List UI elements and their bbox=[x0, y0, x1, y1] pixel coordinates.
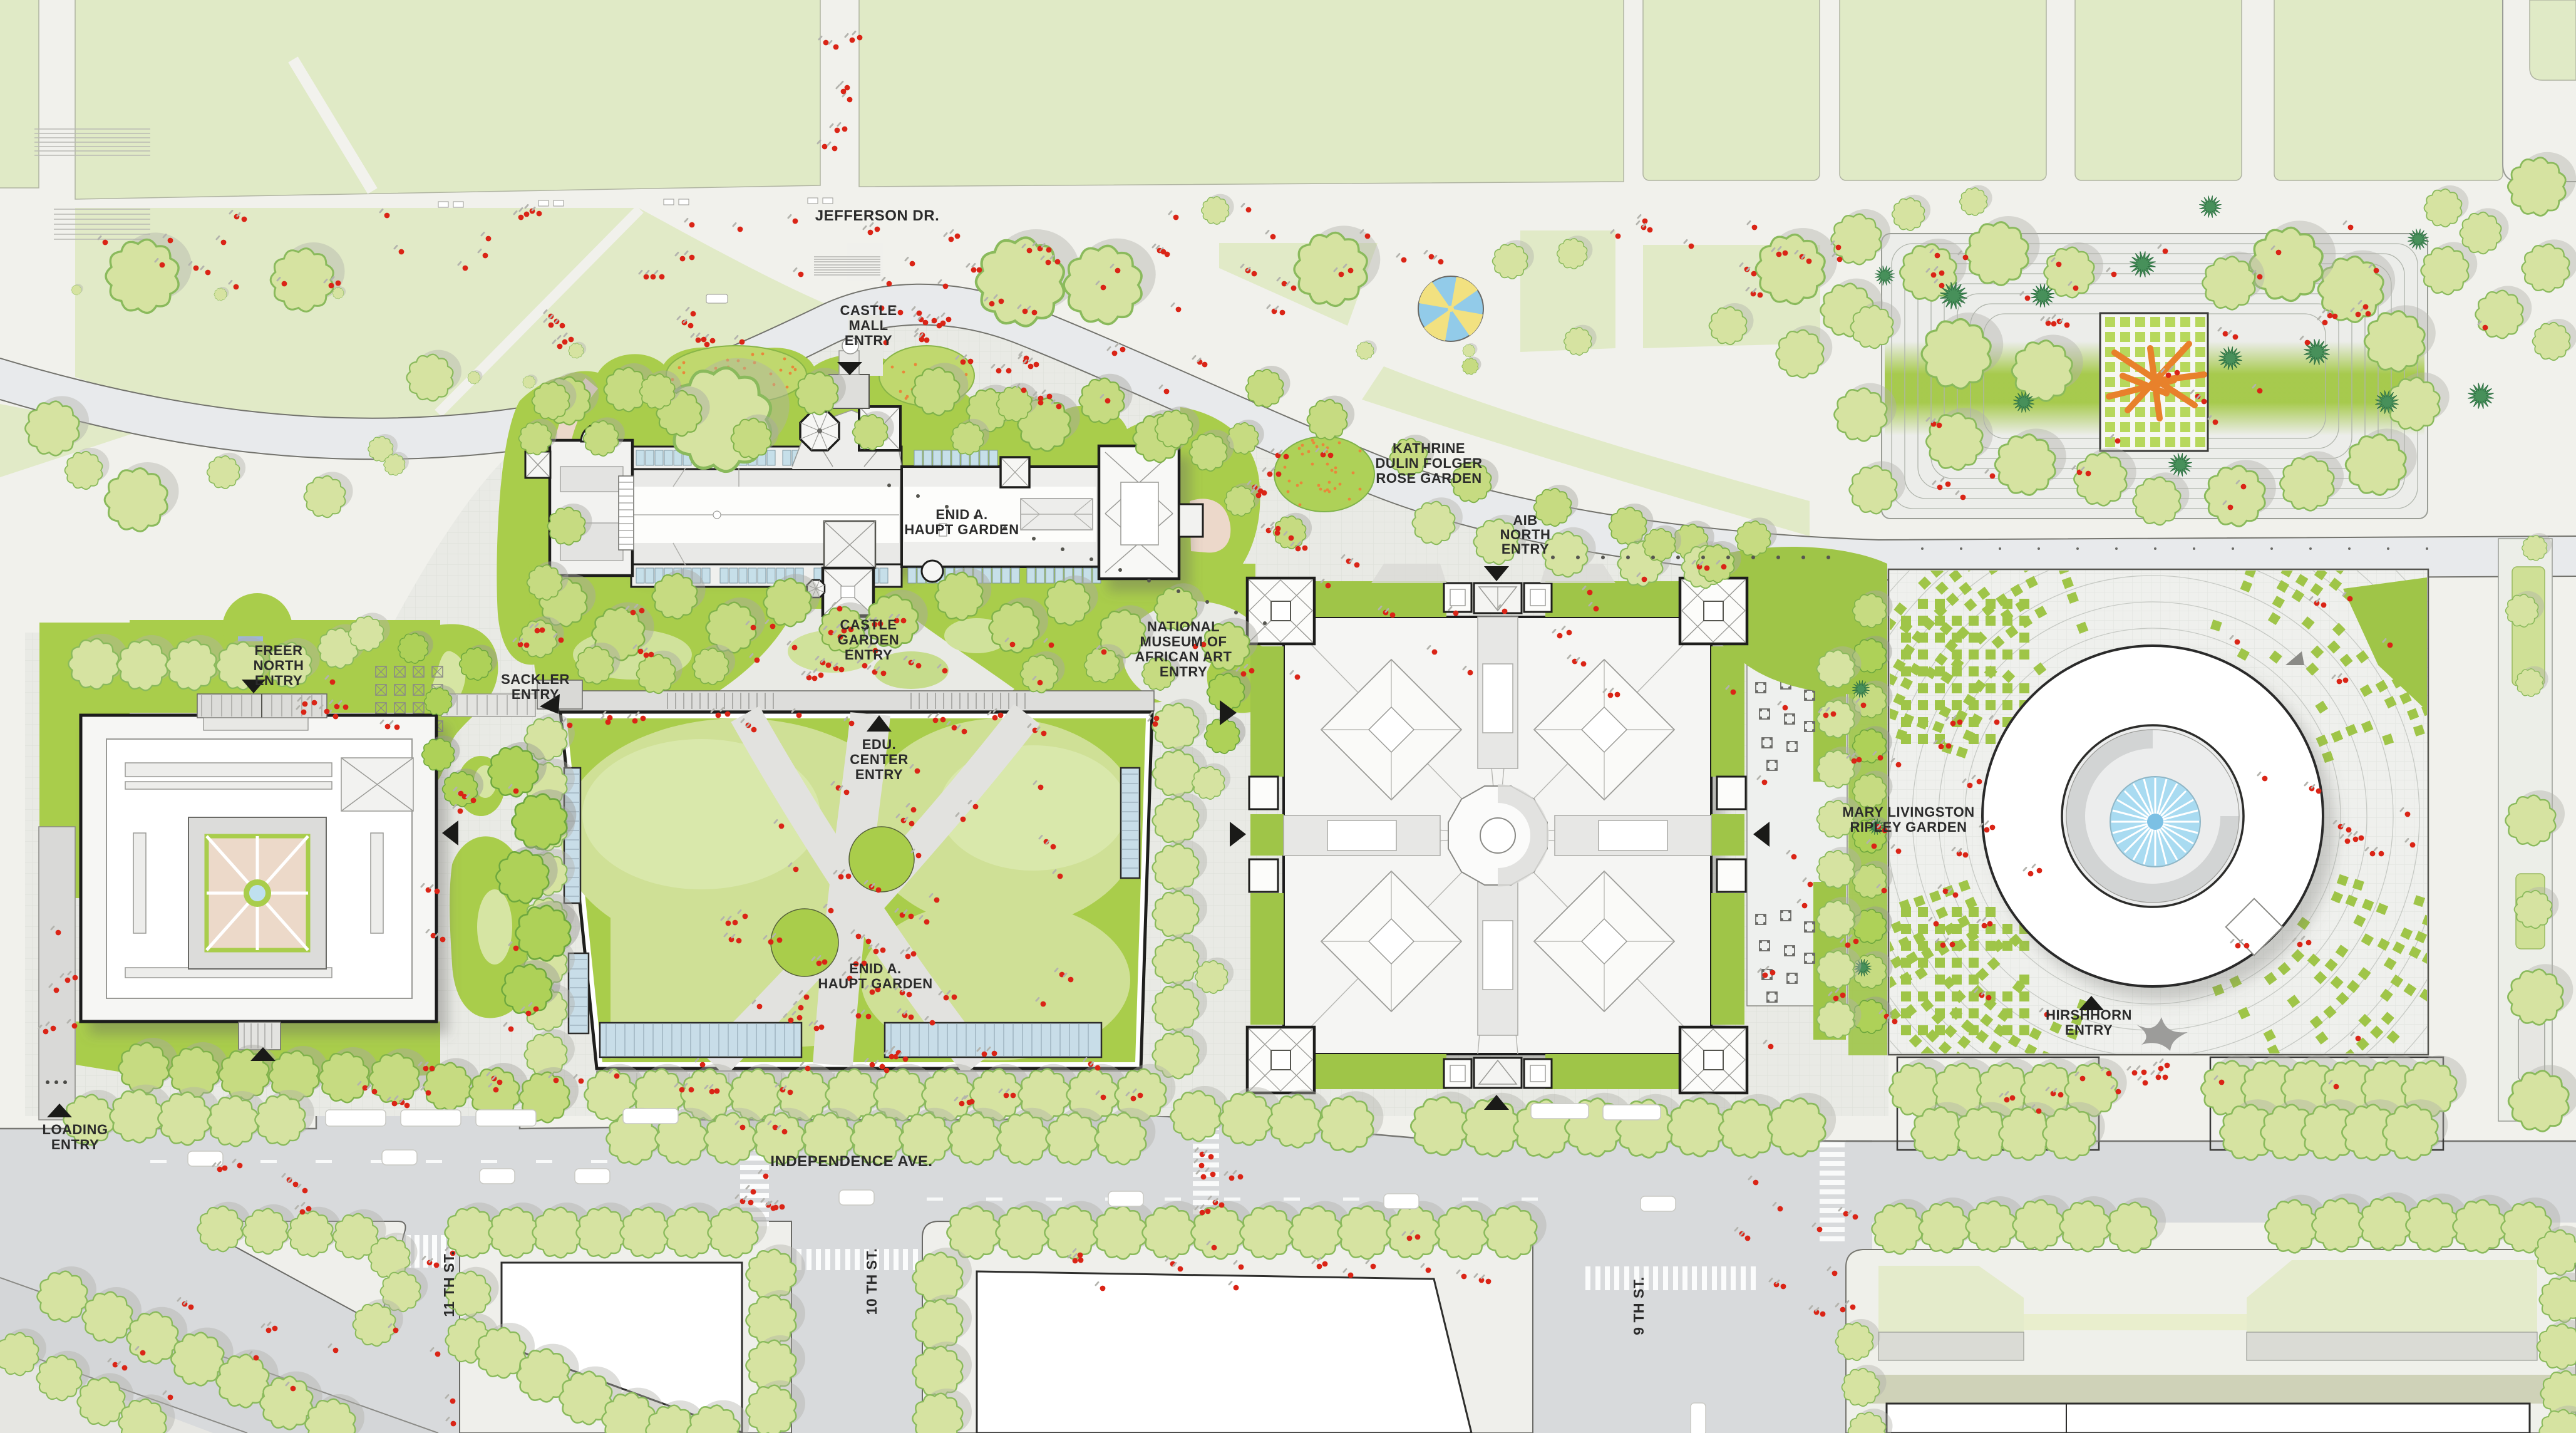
svg-text:9 TH ST.: 9 TH ST. bbox=[1631, 1276, 1647, 1335]
svg-text:LOADINGENTRY: LOADINGENTRY bbox=[43, 1122, 108, 1152]
svg-text:FREERNORTHENTRY: FREERNORTHENTRY bbox=[254, 643, 304, 688]
svg-text:INDEPENDENCE AVE.: INDEPENDENCE AVE. bbox=[770, 1153, 932, 1170]
svg-text:CASTLEGARDENENTRY: CASTLEGARDENENTRY bbox=[838, 617, 899, 663]
svg-text:MARY LIVINGSTONRIPLEY GARDEN: MARY LIVINGSTONRIPLEY GARDEN bbox=[1842, 804, 1974, 835]
svg-text:JEFFERSON DR.: JEFFERSON DR. bbox=[815, 207, 940, 224]
svg-text:10 TH ST.: 10 TH ST. bbox=[863, 1248, 880, 1315]
svg-text:11 TH ST.: 11 TH ST. bbox=[441, 1251, 457, 1317]
